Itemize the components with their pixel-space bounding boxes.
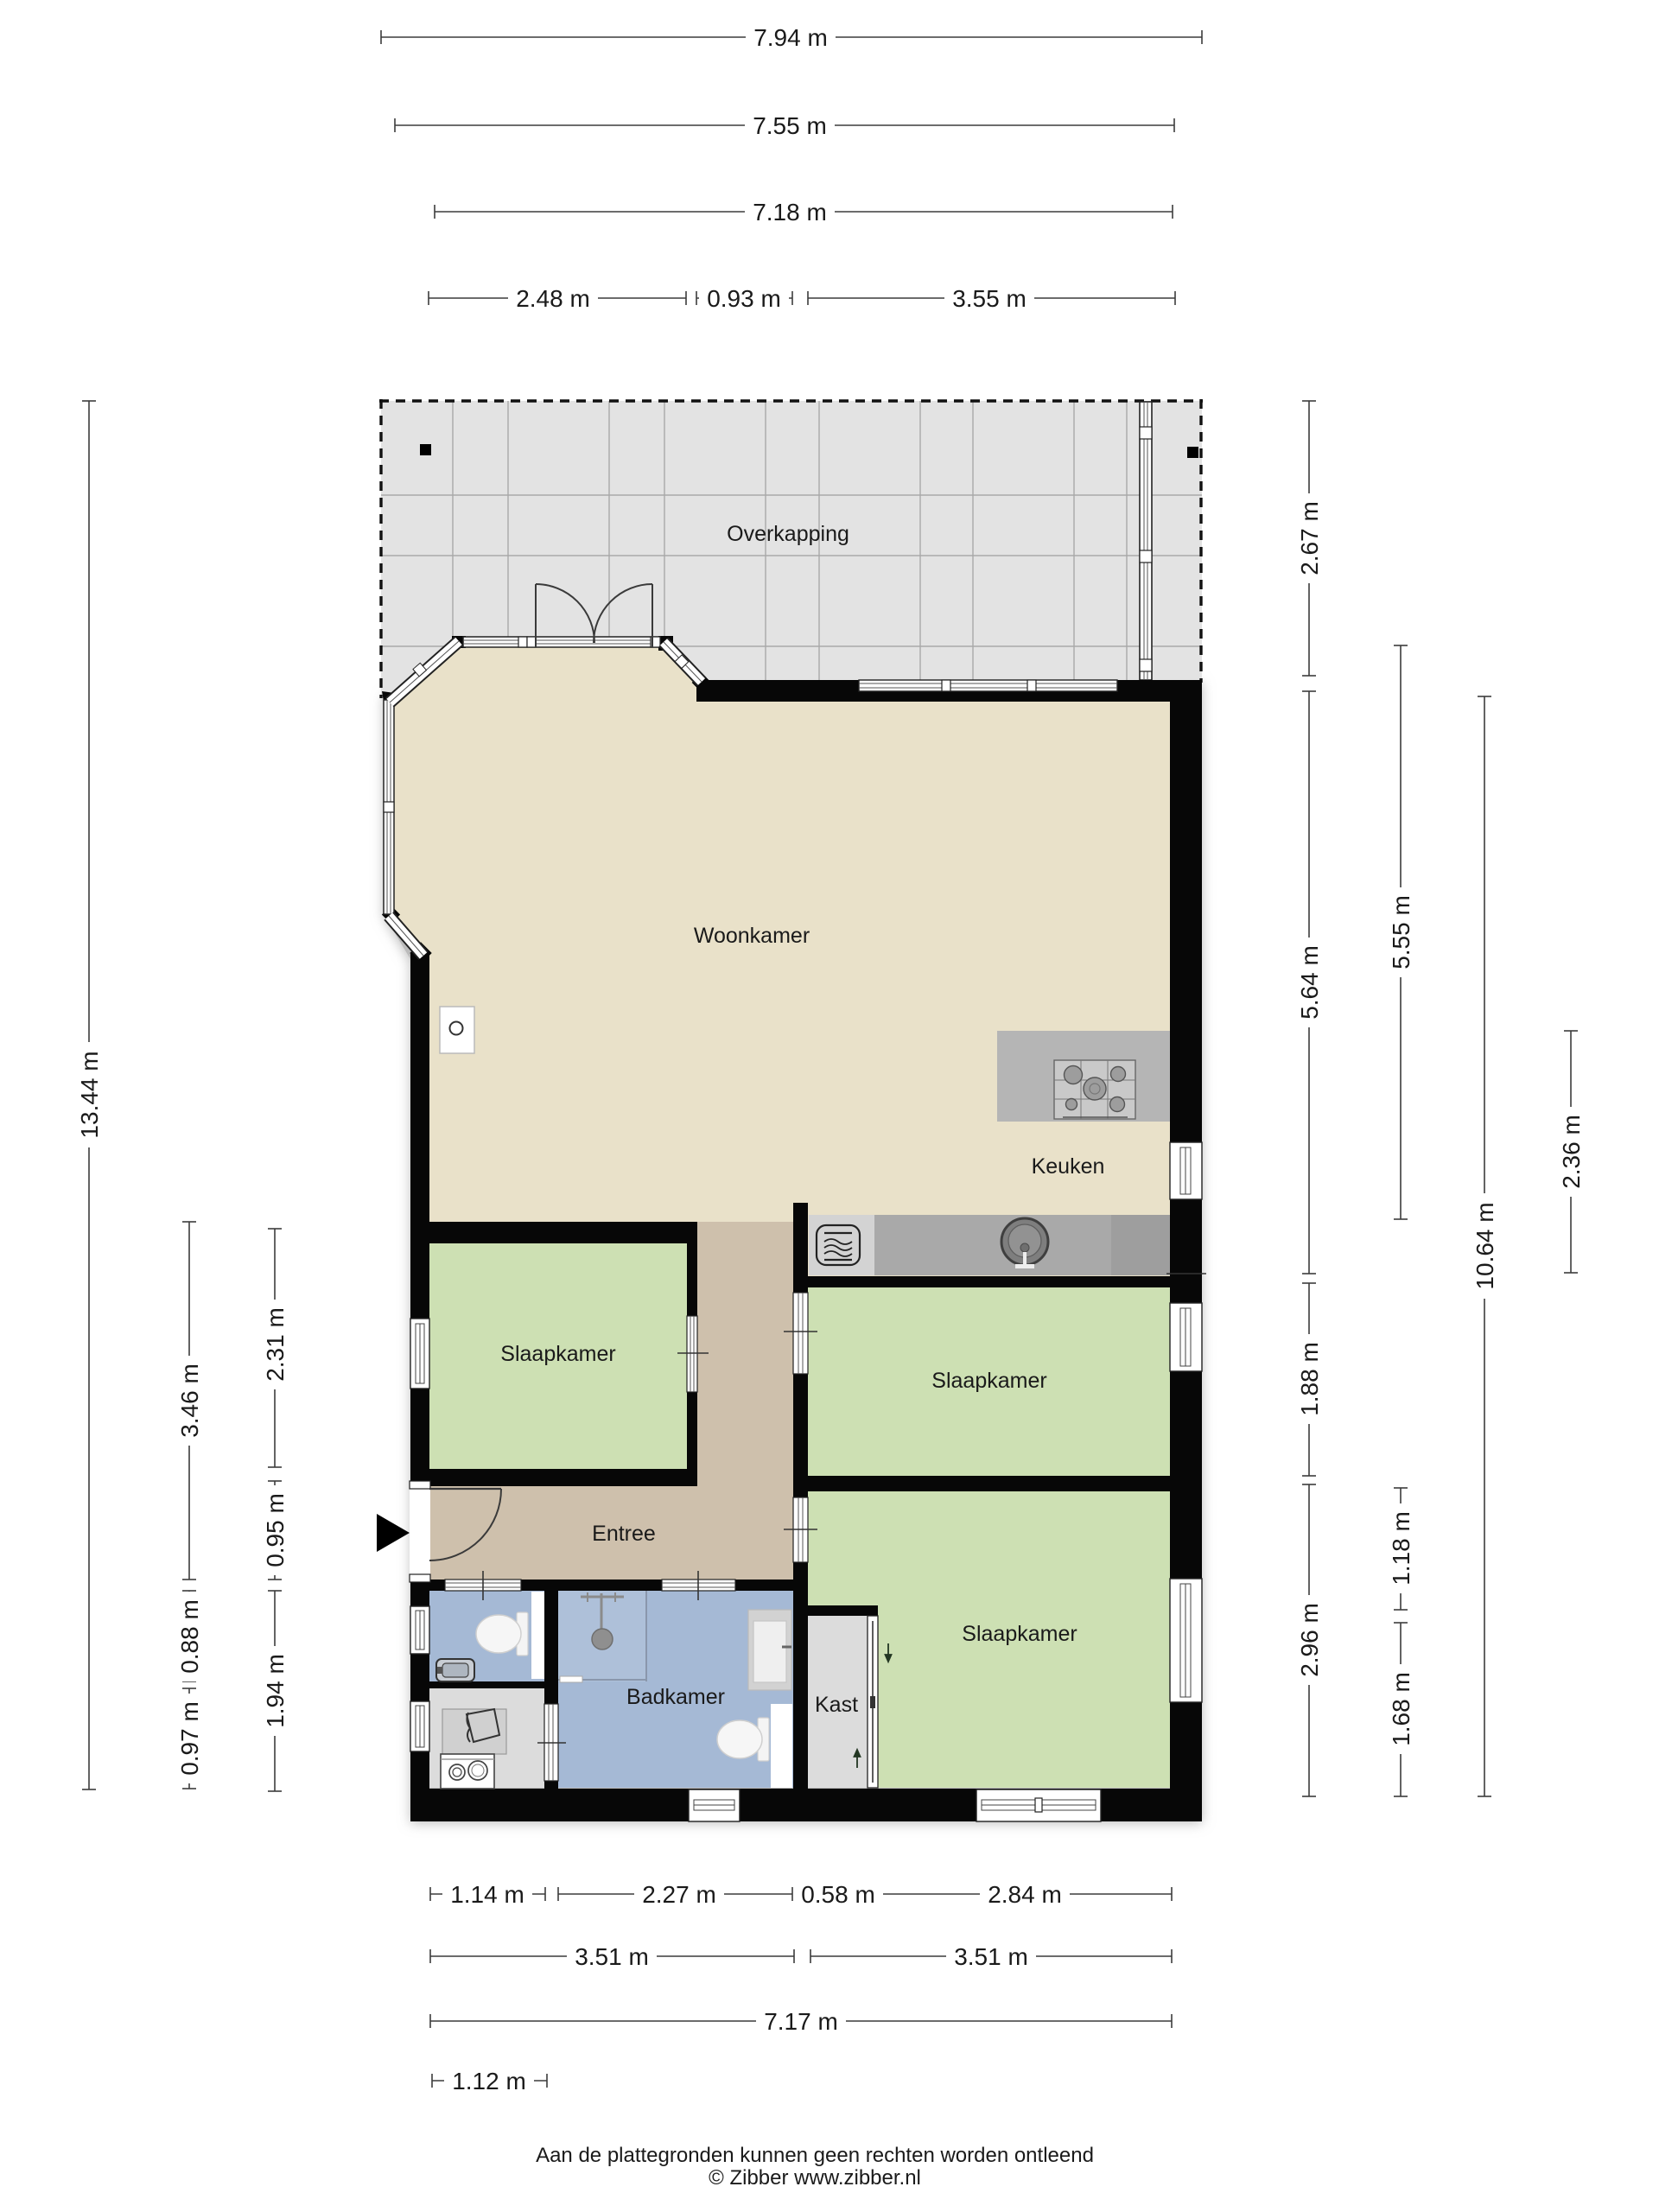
svg-text:2.36 m: 2.36 m	[1558, 1115, 1585, 1189]
svg-text:1.18 m: 1.18 m	[1388, 1511, 1414, 1586]
svg-text:1.68 m: 1.68 m	[1388, 1672, 1414, 1746]
svg-text:Overkapping: Overkapping	[727, 522, 849, 546]
svg-text:3.51 m: 3.51 m	[575, 1943, 649, 1970]
svg-text:10.64 m: 10.64 m	[1471, 1202, 1498, 1289]
svg-text:Slaapkamer: Slaapkamer	[962, 1622, 1077, 1646]
svg-text:© Zibber www.zibber.nl: © Zibber www.zibber.nl	[709, 2166, 921, 2190]
svg-text:Slaapkamer: Slaapkamer	[500, 1342, 615, 1366]
svg-text:2.84 m: 2.84 m	[988, 1881, 1062, 1908]
svg-text:2.31 m: 2.31 m	[262, 1307, 289, 1382]
svg-text:5.64 m: 5.64 m	[1296, 945, 1323, 1020]
svg-text:1.94 m: 1.94 m	[262, 1654, 289, 1728]
svg-text:3.51 m: 3.51 m	[954, 1943, 1028, 1970]
svg-text:0.95 m: 0.95 m	[262, 1493, 289, 1567]
svg-text:7.17 m: 7.17 m	[764, 2008, 838, 2035]
svg-text:Keuken: Keuken	[1032, 1154, 1105, 1179]
svg-text:Badkamer: Badkamer	[626, 1685, 725, 1709]
svg-text:Aan de plattegronden kunnen ge: Aan de plattegronden kunnen geen rechten…	[536, 2144, 1094, 2167]
svg-text:3.55 m: 3.55 m	[952, 285, 1027, 312]
svg-text:Slaapkamer: Slaapkamer	[931, 1369, 1046, 1393]
svg-text:0.88 m: 0.88 m	[176, 1599, 203, 1674]
svg-text:3.46 m: 3.46 m	[176, 1363, 203, 1438]
svg-text:1.14 m: 1.14 m	[450, 1881, 524, 1908]
svg-text:0.58 m: 0.58 m	[801, 1881, 875, 1908]
svg-text:7.55 m: 7.55 m	[753, 112, 827, 139]
svg-text:2.67 m: 2.67 m	[1296, 501, 1323, 575]
svg-text:1.12 m: 1.12 m	[452, 2068, 526, 2094]
svg-text:5.55 m: 5.55 m	[1388, 895, 1414, 969]
svg-text:13.44 m: 13.44 m	[76, 1051, 103, 1138]
svg-text:Entree: Entree	[592, 1522, 656, 1546]
svg-text:1.88 m: 1.88 m	[1296, 1342, 1323, 1416]
svg-text:7.18 m: 7.18 m	[753, 199, 827, 226]
svg-text:Woonkamer: Woonkamer	[694, 924, 810, 948]
svg-text:0.93 m: 0.93 m	[707, 285, 781, 312]
svg-text:2.48 m: 2.48 m	[516, 285, 590, 312]
svg-text:Kast: Kast	[815, 1693, 858, 1717]
svg-text:2.27 m: 2.27 m	[642, 1881, 716, 1908]
svg-text:2.96 m: 2.96 m	[1296, 1603, 1323, 1677]
svg-text:0.97 m: 0.97 m	[176, 1701, 203, 1776]
svg-text:7.94 m: 7.94 m	[753, 24, 828, 51]
